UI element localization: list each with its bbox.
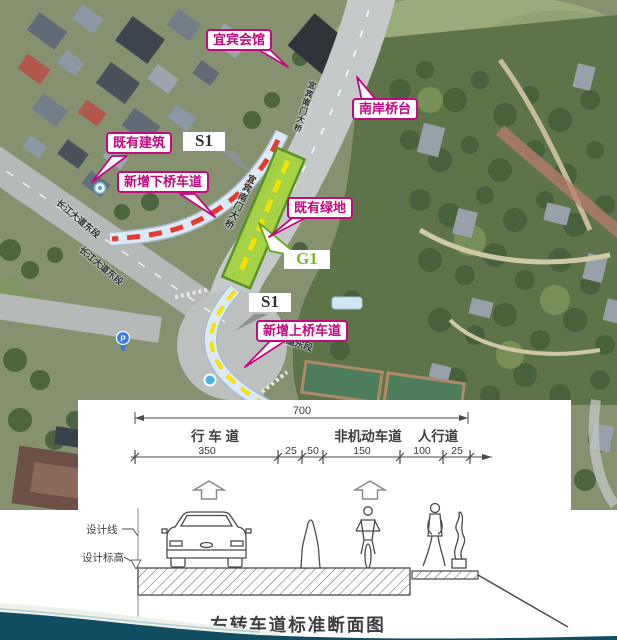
cyclist-figure	[356, 507, 380, 568]
slide-footer-wave	[0, 595, 617, 640]
dim-overall: 700	[293, 405, 311, 417]
bollard-figure	[301, 520, 320, 568]
direction-arrows	[194, 481, 385, 499]
dim-100: 100	[413, 445, 431, 457]
lane-label-vehicle: 行 车 道	[190, 428, 240, 444]
parking-pin-letter: P	[120, 335, 126, 344]
dim-50: 50	[307, 445, 319, 457]
marker-s1-top: S1	[183, 132, 225, 151]
marker-g1: G1	[284, 250, 330, 269]
callout-existing-building: 既有建筑	[106, 132, 172, 154]
dim-25a: 25	[285, 445, 297, 457]
callout-yibin-hall: 宜宾会馆	[206, 29, 272, 51]
design-line-label: 设计线	[86, 523, 118, 536]
pedestrian-figure	[423, 504, 445, 567]
dim-350: 350	[198, 445, 216, 457]
slide: P 宜宾南门大桥 宜宾南门大桥 长江大道东段 长江大道东段 长江大道东段 宜宾会…	[0, 0, 617, 640]
callout-south-abutment: 南岸桥台	[352, 98, 418, 120]
lane-label-nonmotor: 非机动车道	[334, 428, 402, 444]
dim-25b: 25	[451, 445, 463, 457]
callout-new-up-lane: 新增上桥车道	[256, 320, 348, 342]
design-elevation-label: 设计标高	[82, 551, 124, 564]
dim-150: 150	[353, 445, 371, 457]
sidewalk-hatch	[412, 571, 478, 579]
car-figure	[162, 512, 251, 567]
roadbed-hatch	[138, 568, 410, 595]
callout-existing-green: 既有绿地	[287, 197, 353, 219]
callout-new-down-lane: 新增下桥车道	[117, 171, 209, 193]
sculpture-figure	[452, 512, 466, 568]
marker-s1-bottom: S1	[249, 293, 291, 312]
lane-label-sidewalk: 人行道	[418, 428, 459, 444]
